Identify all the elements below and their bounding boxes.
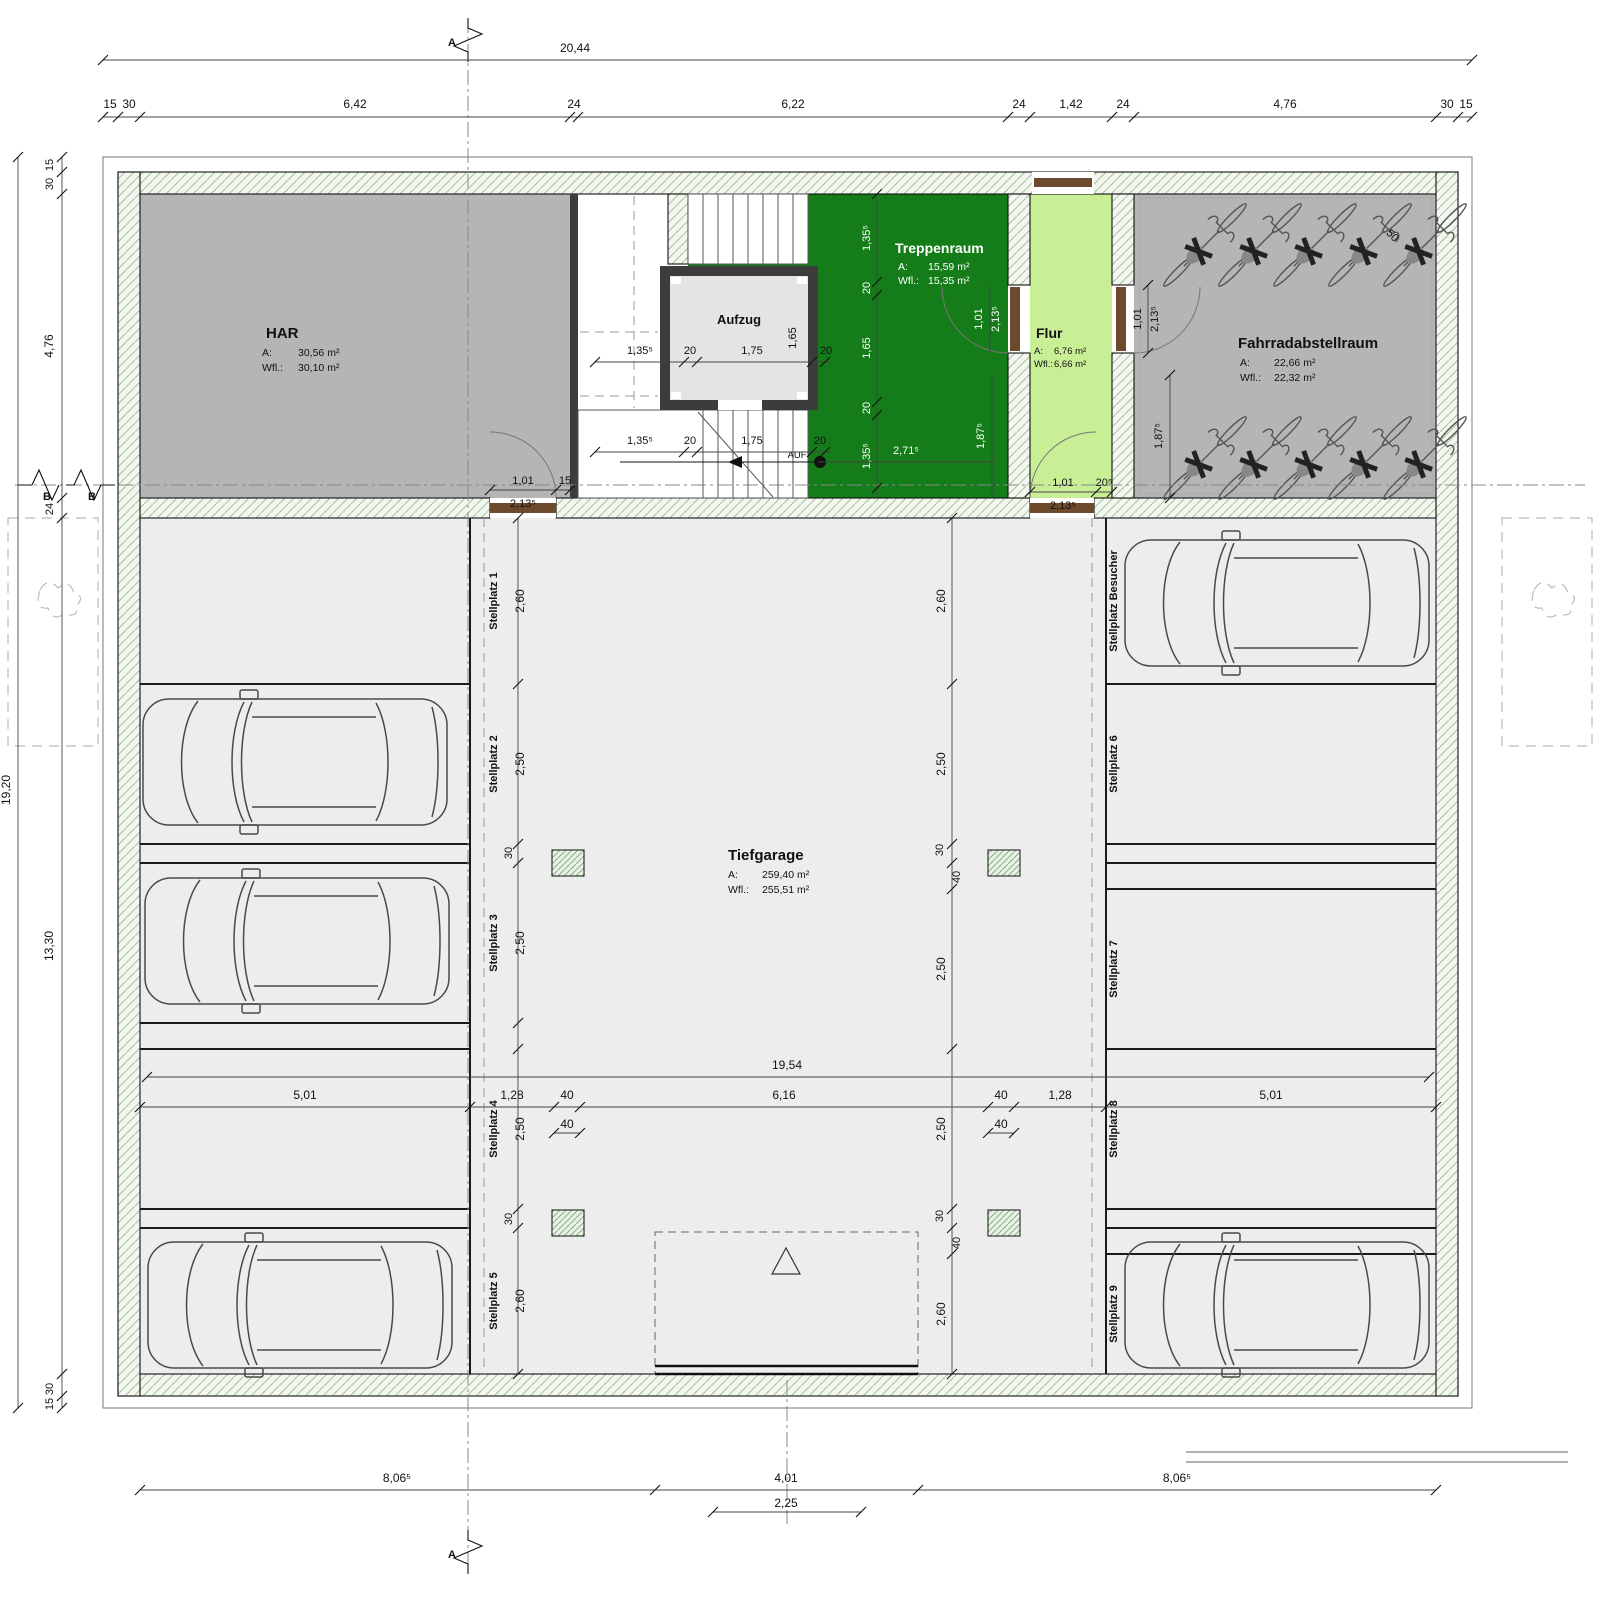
dim-label: 30: [44, 1383, 56, 1395]
dim-label: 1,01: [973, 308, 985, 329]
dim-label: 2,13⁵: [990, 306, 1002, 332]
area-label: A:: [1034, 346, 1043, 357]
area-label: A:: [1240, 357, 1250, 369]
dim-label: 24: [44, 503, 56, 515]
room-label-har: HAR: [266, 325, 299, 342]
dim-label: 2,60: [934, 589, 948, 613]
stall-label: Stellplatz 2: [488, 735, 500, 792]
dim-label: 2,13⁵: [510, 498, 536, 510]
dim-label: 5,01: [293, 1088, 317, 1102]
dim-label: 2,50: [513, 931, 527, 955]
dim-label: 1,01: [512, 475, 533, 487]
area-value: 22,32 m²: [1274, 372, 1316, 384]
dim-chain-top: 20,44 15 30 6,42 24 6,22 24 1,42 24 4,76…: [98, 41, 1477, 122]
dim-label: 40: [994, 1088, 1008, 1102]
section-marker-a-top: [454, 18, 482, 62]
area-value: 259,40 m²: [762, 869, 810, 881]
dim-label: 20⁵: [1096, 477, 1113, 489]
dim-label: 30: [934, 844, 946, 856]
section-marker-a-bottom: [454, 1530, 482, 1574]
area-label: Wfl.:: [898, 275, 919, 287]
room-label-fahrradraum: Fahrradabstellraum: [1238, 335, 1378, 352]
area-label: A:: [262, 347, 272, 359]
dim-label: 24: [567, 97, 581, 111]
pillar: [988, 1210, 1020, 1236]
stall-label: Stellplatz Besucher: [1108, 550, 1120, 652]
section-b-label: B: [88, 491, 96, 503]
stall-label: Stellplatz 9: [1108, 1285, 1120, 1342]
area-label: Wfl.:: [1034, 359, 1053, 370]
dim-label: 1,35⁵: [627, 345, 653, 357]
dim-label: 1,87⁵: [975, 423, 987, 449]
stall-label: Stellplatz 8: [1108, 1100, 1120, 1157]
dim-label: 2,25: [774, 1496, 798, 1510]
dim-label: 2,50: [934, 957, 948, 981]
area-label: Wfl.:: [262, 362, 283, 374]
room-label-aufzug: Aufzug: [717, 312, 761, 327]
dim-label: 2,50: [513, 752, 527, 776]
dim-label: 4,76: [42, 334, 56, 358]
stall-label: Stellplatz 6: [1108, 735, 1120, 792]
area-label: Wfl.:: [1240, 372, 1261, 384]
dim-label: 2,71⁵: [893, 445, 919, 457]
dim-label: 1,87⁵: [1153, 423, 1165, 449]
pillar: [552, 1210, 584, 1236]
dim-label: 20: [684, 435, 696, 447]
stall-label: Stellplatz 1: [488, 572, 500, 629]
section-b-label: B: [43, 491, 51, 503]
dim-label: 1,75: [741, 345, 762, 357]
dim-label: 1,28: [500, 1088, 524, 1102]
area-label: A:: [898, 261, 908, 273]
dim-label: 8,06⁵: [1163, 1471, 1191, 1485]
dim-label: 1,01: [1132, 308, 1144, 329]
dim-label: 4,76: [1273, 97, 1297, 111]
dim-label: 30: [122, 97, 136, 111]
dim-label: 1,75: [741, 435, 762, 447]
dim-label: 40: [951, 871, 963, 883]
dim-label: 2,13⁵: [1050, 500, 1076, 512]
floor-plan-drawing: AUF Aufzug: [0, 0, 1600, 1600]
dim-label: 2,50: [934, 1117, 948, 1141]
dim-label: 5,01: [1259, 1088, 1283, 1102]
area-label: A:: [728, 869, 738, 881]
dim-label: 2,13⁵: [1149, 306, 1161, 332]
dim-label: 1,28: [1048, 1088, 1072, 1102]
dim-label: 6,22: [781, 97, 805, 111]
area-value: 15,59 m²: [928, 261, 970, 273]
dim-label: 15: [103, 97, 117, 111]
dim-label: 19,20: [0, 775, 13, 805]
dim-label: 1,35⁵: [861, 225, 873, 251]
dim-label: 2,60: [513, 1289, 527, 1313]
dim-label: 1,65: [787, 327, 799, 348]
dim-label: 30: [44, 178, 56, 190]
flur-exit-door: [1034, 178, 1092, 187]
tiefgarage-floor: [140, 518, 1436, 1374]
dim-label: 4,01: [774, 1471, 798, 1485]
dim-label: 1,35⁵: [861, 443, 873, 469]
area-value: 15,35 m²: [928, 275, 970, 287]
stall-label: Stellplatz 7: [1108, 940, 1120, 997]
dim-label: 40: [994, 1117, 1008, 1131]
har-partition-wall: [570, 194, 578, 498]
dim-label: 20,44: [560, 41, 590, 55]
dim-label: 40: [560, 1117, 574, 1131]
dim-label: 15: [44, 159, 56, 171]
har-room: [140, 194, 570, 498]
dim-label: 24: [1116, 97, 1130, 111]
dim-label: 13,30: [42, 931, 56, 961]
dim-label: 1,42: [1059, 97, 1083, 111]
dim-label: 15: [559, 475, 571, 487]
dim-label: 6,16: [772, 1088, 796, 1102]
dim-label: 40: [560, 1088, 574, 1102]
section-a-label: A: [448, 1549, 456, 1561]
dim-label: 15: [1459, 97, 1473, 111]
dim-label: 30: [503, 847, 515, 859]
driveway-edge: [1186, 1452, 1568, 1462]
area-value: 30,10 m²: [298, 362, 340, 374]
dim-label: 2,60: [513, 589, 527, 613]
area-value: 22,66 m²: [1274, 357, 1316, 369]
area-value: 255,51 m²: [762, 884, 810, 896]
dim-label: 20: [861, 282, 873, 294]
stall-label: Stellplatz 3: [488, 914, 500, 971]
treppenraum-flur-door: [1010, 287, 1020, 351]
dim-label: 20: [861, 402, 873, 414]
dim-chain-bottom: 8,06⁵ 4,01 8,06⁵ 2,25: [135, 1471, 1441, 1517]
dim-label: 1,35⁵: [627, 435, 653, 447]
area-value: 6,76 m²: [1054, 346, 1086, 357]
dim-label: 2,60: [934, 1302, 948, 1326]
dim-label: 20: [684, 345, 696, 357]
area-label: Wfl.:: [728, 884, 749, 896]
stall-label: Stellplatz 5: [488, 1272, 500, 1329]
dim-label: 30: [503, 1213, 515, 1225]
dim-label: 20: [820, 345, 832, 357]
area-value: 30,56 m²: [298, 347, 340, 359]
dim-label: 24: [1012, 97, 1026, 111]
dim-label: 40: [951, 1237, 963, 1249]
dim-label: 30: [1440, 97, 1454, 111]
dim-label: 15: [44, 1398, 56, 1410]
room-label-treppenraum: Treppenraum: [895, 240, 984, 256]
dim-label: 1,65: [861, 337, 873, 358]
dim-label: 2,50: [934, 752, 948, 776]
pillar: [552, 850, 584, 876]
area-value: 6,66 m²: [1054, 359, 1086, 370]
pillar: [988, 850, 1020, 876]
room-label-flur: Flur: [1036, 325, 1063, 341]
stall-label: Stellplatz 4: [488, 1099, 500, 1157]
dim-label: 8,06⁵: [383, 1471, 411, 1485]
dim-label: 19,54: [772, 1058, 802, 1072]
section-a-label: A: [448, 37, 456, 49]
dim-label: 6,42: [343, 97, 367, 111]
dim-label: 20: [814, 435, 826, 447]
dim-label: 2,50: [513, 1117, 527, 1141]
room-label-tiefgarage: Tiefgarage: [728, 847, 804, 864]
dim-label: 30: [934, 1210, 946, 1222]
flur-fahrrad-door: [1116, 287, 1126, 351]
dim-label: 1,01: [1052, 477, 1073, 489]
dim-chain-left: 19,20 15 30 4,76 24 13,30 30 15: [0, 152, 67, 1413]
